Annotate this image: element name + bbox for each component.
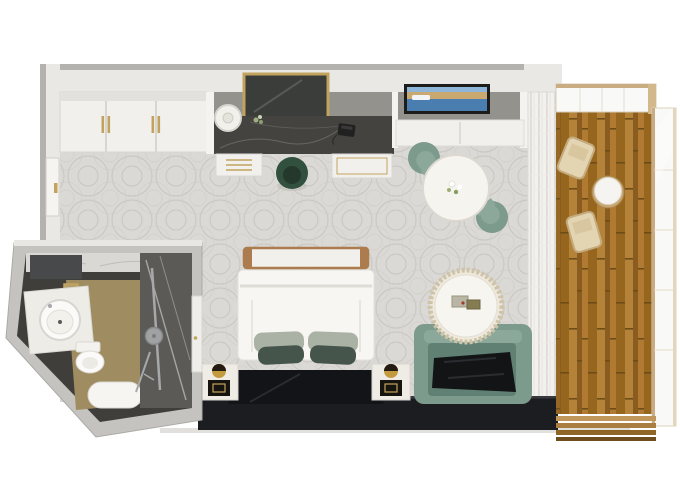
balcony-side-table — [592, 176, 624, 208]
sofa-throw — [432, 352, 516, 392]
balcony-railing-right — [652, 108, 676, 426]
dining-table — [423, 155, 489, 221]
washbasin — [40, 300, 80, 340]
coffee-table — [430, 270, 502, 342]
balcony-railing-top — [556, 84, 656, 114]
floorplan-render — [0, 0, 680, 486]
tv-ship-icon — [412, 95, 430, 100]
desk-chair — [276, 157, 308, 191]
bed — [228, 248, 384, 404]
wardrobe — [60, 92, 214, 154]
headboard — [228, 370, 384, 404]
bathroom-door — [192, 296, 202, 372]
tv-zone — [392, 84, 528, 148]
table-lamp-left — [212, 364, 226, 378]
nightstand-left — [200, 364, 238, 400]
tv — [404, 84, 490, 114]
nightstand-right — [372, 364, 410, 400]
bed-bench — [244, 248, 368, 268]
toilet — [76, 342, 104, 373]
drawer-unit — [216, 154, 262, 176]
floorplan-svg — [0, 0, 680, 486]
bathtub — [88, 382, 142, 408]
tv-cabinet — [396, 120, 524, 146]
desk-cabinet — [332, 154, 392, 178]
shower — [136, 253, 192, 408]
sheer-curtains — [528, 92, 556, 402]
table-lamp-right — [384, 364, 398, 378]
bathroom-mirror — [30, 255, 82, 279]
entry-door-handle-icon — [54, 183, 58, 193]
balcony — [556, 84, 676, 441]
